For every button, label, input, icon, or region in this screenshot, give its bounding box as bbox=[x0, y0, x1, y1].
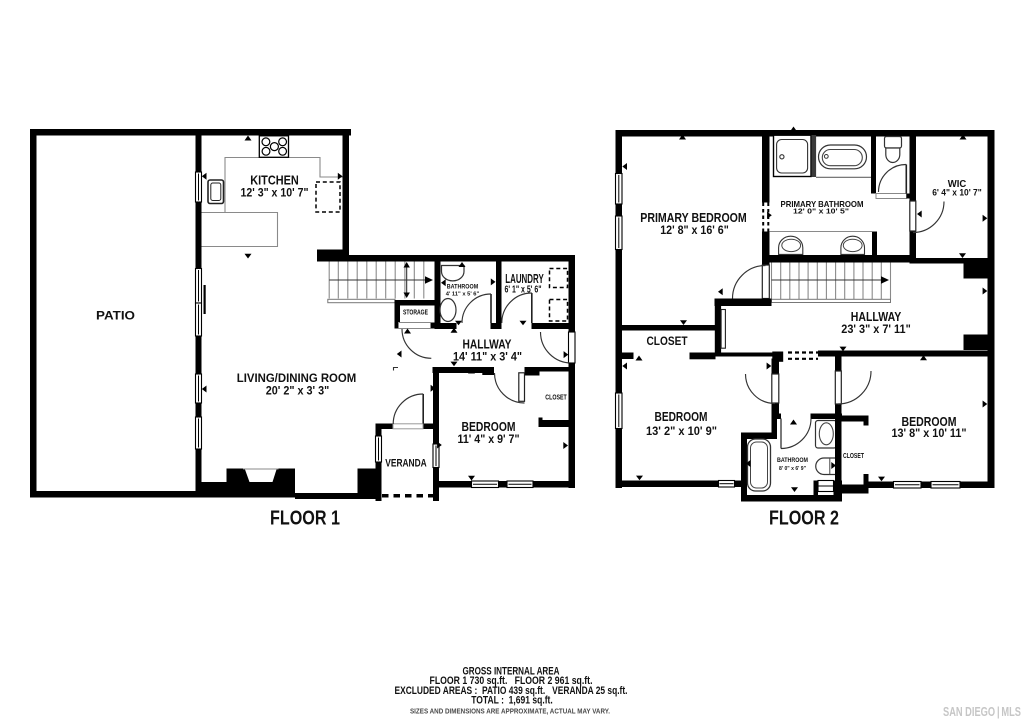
svg-text:BATHROOM: BATHROOM bbox=[777, 457, 808, 464]
svg-text:BEDROOM: BEDROOM bbox=[655, 410, 708, 424]
svg-text:8' 0" x 6' 9": 8' 0" x 6' 9" bbox=[779, 466, 806, 472]
svg-text:FLOOR 2: FLOOR 2 bbox=[769, 508, 839, 530]
svg-text:TOTAL : 1,691 sq.ft.: TOTAL : 1,691 sq.ft. bbox=[471, 695, 553, 707]
svg-text:PATIO: PATIO bbox=[96, 311, 135, 323]
svg-text:BATHROOM: BATHROOM bbox=[447, 284, 479, 291]
svg-text:6' 4" x 10' 7": 6' 4" x 10' 7" bbox=[932, 188, 982, 198]
svg-text:STORAGE: STORAGE bbox=[403, 308, 428, 317]
svg-text:13' 8" x 10' 11": 13' 8" x 10' 11" bbox=[892, 426, 967, 440]
svg-text:11' 4" x 9' 7": 11' 4" x 9' 7" bbox=[458, 432, 520, 446]
svg-text:4' 11" x 5' 6": 4' 11" x 5' 6" bbox=[446, 292, 480, 298]
svg-text:12' 3" x 10' 7": 12' 3" x 10' 7" bbox=[241, 186, 309, 200]
svg-text:SIZES AND DIMENSIONS ARE APPRO: SIZES AND DIMENSIONS ARE APPROXIMATE, AC… bbox=[410, 707, 610, 716]
svg-text:13' 2" x 10' 9": 13' 2" x 10' 9" bbox=[646, 424, 717, 438]
svg-text:6' 1" x 5' 6": 6' 1" x 5' 6" bbox=[505, 284, 542, 296]
svg-text:23' 3" x 7' 11": 23' 3" x 7' 11" bbox=[841, 322, 911, 336]
svg-text:CLOSET: CLOSET bbox=[843, 451, 864, 460]
svg-text:12' 8" x 16' 6": 12' 8" x 16' 6" bbox=[660, 223, 729, 237]
svg-text:20' 2" x 3' 3": 20' 2" x 3' 3" bbox=[266, 384, 330, 398]
svg-text:14' 11" x 3' 4": 14' 11" x 3' 4" bbox=[453, 350, 522, 364]
svg-text:FLOOR 1: FLOOR 1 bbox=[270, 508, 340, 530]
svg-text:12' 0" x 10' 5": 12' 0" x 10' 5" bbox=[793, 207, 849, 216]
svg-text:SAN DIEGO | MLS: SAN DIEGO | MLS bbox=[943, 704, 1021, 719]
svg-text:CLOSET: CLOSET bbox=[647, 334, 688, 348]
svg-text:CLOSET: CLOSET bbox=[545, 393, 567, 402]
svg-text:VERANDA: VERANDA bbox=[385, 458, 427, 470]
